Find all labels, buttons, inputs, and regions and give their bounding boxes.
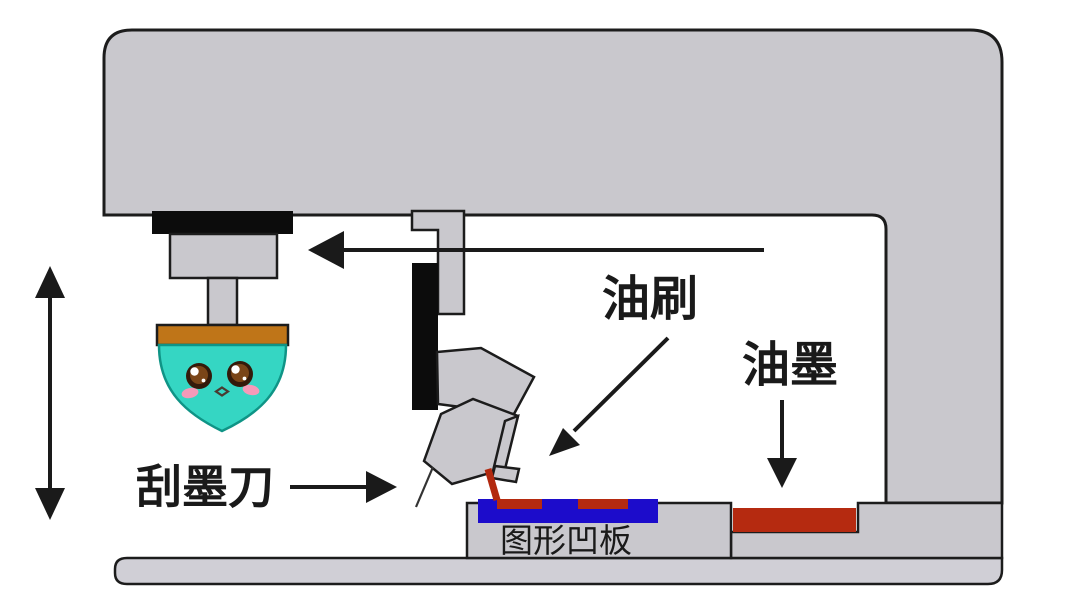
ink-pool xyxy=(733,508,856,532)
label-pattern-plate: 图形凹板 xyxy=(500,521,632,560)
head-mount-black xyxy=(152,211,293,234)
pad-printing-diagram: 刮墨刀 油刷 油墨 图形凹板 xyxy=(0,0,1080,616)
eye-right xyxy=(227,361,253,387)
scraper-blade-needle xyxy=(416,467,433,507)
motion-arrow-horizontal xyxy=(308,231,764,269)
label-ink-brush: 油刷 xyxy=(602,271,698,327)
scraper-pointer-arrow xyxy=(290,471,397,503)
pad-cap xyxy=(157,325,288,345)
ink-brush-pointer-arrow xyxy=(549,338,668,456)
label-scraper-blade: 刮墨刀 xyxy=(136,460,274,514)
ink-pointer-arrow xyxy=(767,400,797,488)
slide-rail-black xyxy=(412,263,438,410)
ink-filled-cell-1 xyxy=(497,499,542,509)
motion-arrow-vertical xyxy=(35,266,65,520)
label-ink: 油墨 xyxy=(742,337,838,393)
base-slide-bar xyxy=(115,558,1002,584)
eye-left xyxy=(186,363,212,389)
pad-stem xyxy=(208,278,237,325)
head-block xyxy=(170,234,277,278)
ink-filled-cell-2 xyxy=(578,499,628,509)
brush-foot xyxy=(492,466,519,482)
